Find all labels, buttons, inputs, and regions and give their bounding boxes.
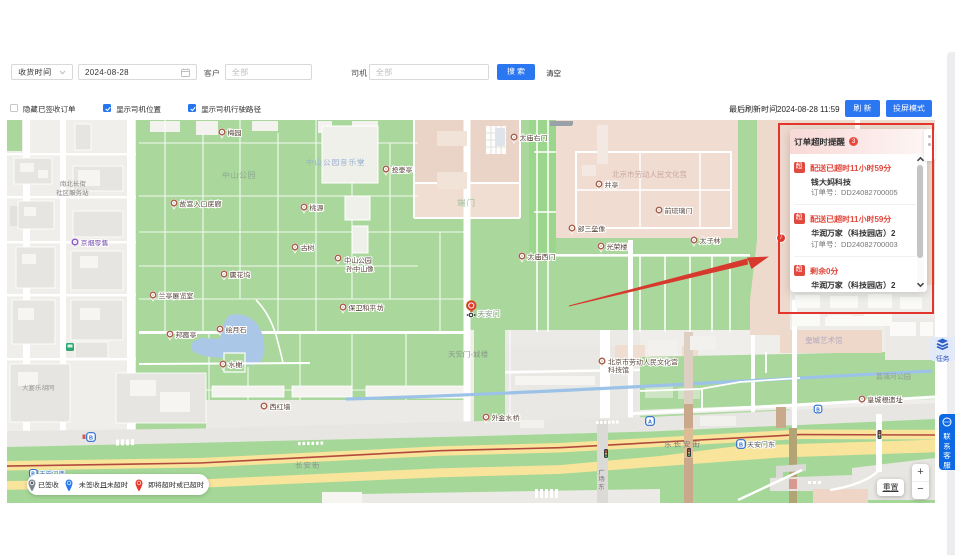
svg-text:已签收: 已签收 xyxy=(38,481,59,490)
svg-text:中山公园: 中山公园 xyxy=(344,257,372,265)
svg-text:水榭: 水榭 xyxy=(229,361,244,370)
svg-text:兰亭展览室: 兰亭展览室 xyxy=(159,292,194,301)
svg-text:孙中山像: 孙中山像 xyxy=(346,265,375,274)
svg-text:京烟零售: 京烟零售 xyxy=(81,239,109,248)
svg-text:天安门: 天安门 xyxy=(478,310,501,319)
svg-text:天安门东: 天安门东 xyxy=(747,440,775,449)
svg-text:B: B xyxy=(89,436,93,442)
svg-text:唐花坞: 唐花坞 xyxy=(230,271,251,280)
svg-text:北京市劳动人民文化宫: 北京市劳动人民文化宫 xyxy=(612,169,687,179)
svg-text:中山公园音乐堂: 中山公园音乐堂 xyxy=(306,158,366,167)
svg-text:前琉璃门: 前琉璃门 xyxy=(665,207,693,216)
svg-text:外金水桥: 外金水桥 xyxy=(492,414,520,423)
svg-text:东长安街: 东长安街 xyxy=(664,440,702,449)
svg-text:皇城根遗址: 皇城根遗址 xyxy=(868,397,903,405)
svg-text:社区服务站: 社区服务站 xyxy=(56,189,89,197)
svg-text:保卫和平坊: 保卫和平坊 xyxy=(349,304,384,313)
svg-text:太庙右门: 太庙右门 xyxy=(520,134,548,143)
svg-text:菖蒲河公园: 菖蒲河公园 xyxy=(876,373,911,381)
svg-text:西红墙: 西红墙 xyxy=(270,404,291,412)
svg-text:皇城艺术馆: 皇城艺术馆 xyxy=(805,335,843,345)
svg-text:梅园: 梅园 xyxy=(228,129,242,138)
svg-text:投壶亭: 投壶亭 xyxy=(392,166,413,175)
svg-text:桃源: 桃源 xyxy=(310,204,324,213)
svg-text:南北长街: 南北长街 xyxy=(59,180,87,188)
svg-text:中山公园: 中山公园 xyxy=(222,171,256,180)
svg-text:北京市劳动人民文化宫: 北京市劳动人民文化宫 xyxy=(608,358,678,367)
svg-text:未签收且未超时: 未签收且未超时 xyxy=(79,481,128,490)
svg-text:B: B xyxy=(816,407,820,413)
svg-text:端门: 端门 xyxy=(457,198,476,208)
svg-text:太子林: 太子林 xyxy=(700,238,721,246)
svg-text:天安门-城楼: 天安门-城楼 xyxy=(448,350,488,359)
svg-text:故宫入口庑廊: 故宫入口庑廊 xyxy=(180,200,222,209)
svg-text:绘月石: 绘月石 xyxy=(226,326,247,335)
svg-text:古树: 古树 xyxy=(301,244,315,253)
svg-text:郐三垒像: 郐三垒像 xyxy=(578,225,607,234)
svg-text:太庙西门: 太庙西门 xyxy=(528,253,556,262)
svg-text:邦霞亭: 邦霞亭 xyxy=(176,331,197,340)
svg-text:长安街: 长安街 xyxy=(295,461,321,470)
svg-text:B: B xyxy=(739,443,743,449)
svg-text:即将超时或已超时: 即将超时或已超时 xyxy=(148,481,204,490)
svg-text:科技馆: 科技馆 xyxy=(608,366,629,375)
svg-text:A: A xyxy=(648,420,652,426)
svg-text:井亭: 井亭 xyxy=(605,181,619,190)
svg-text:光荣楼: 光荣楼 xyxy=(607,244,628,252)
svg-text:大宴乐胡同: 大宴乐胡同 xyxy=(22,384,55,392)
